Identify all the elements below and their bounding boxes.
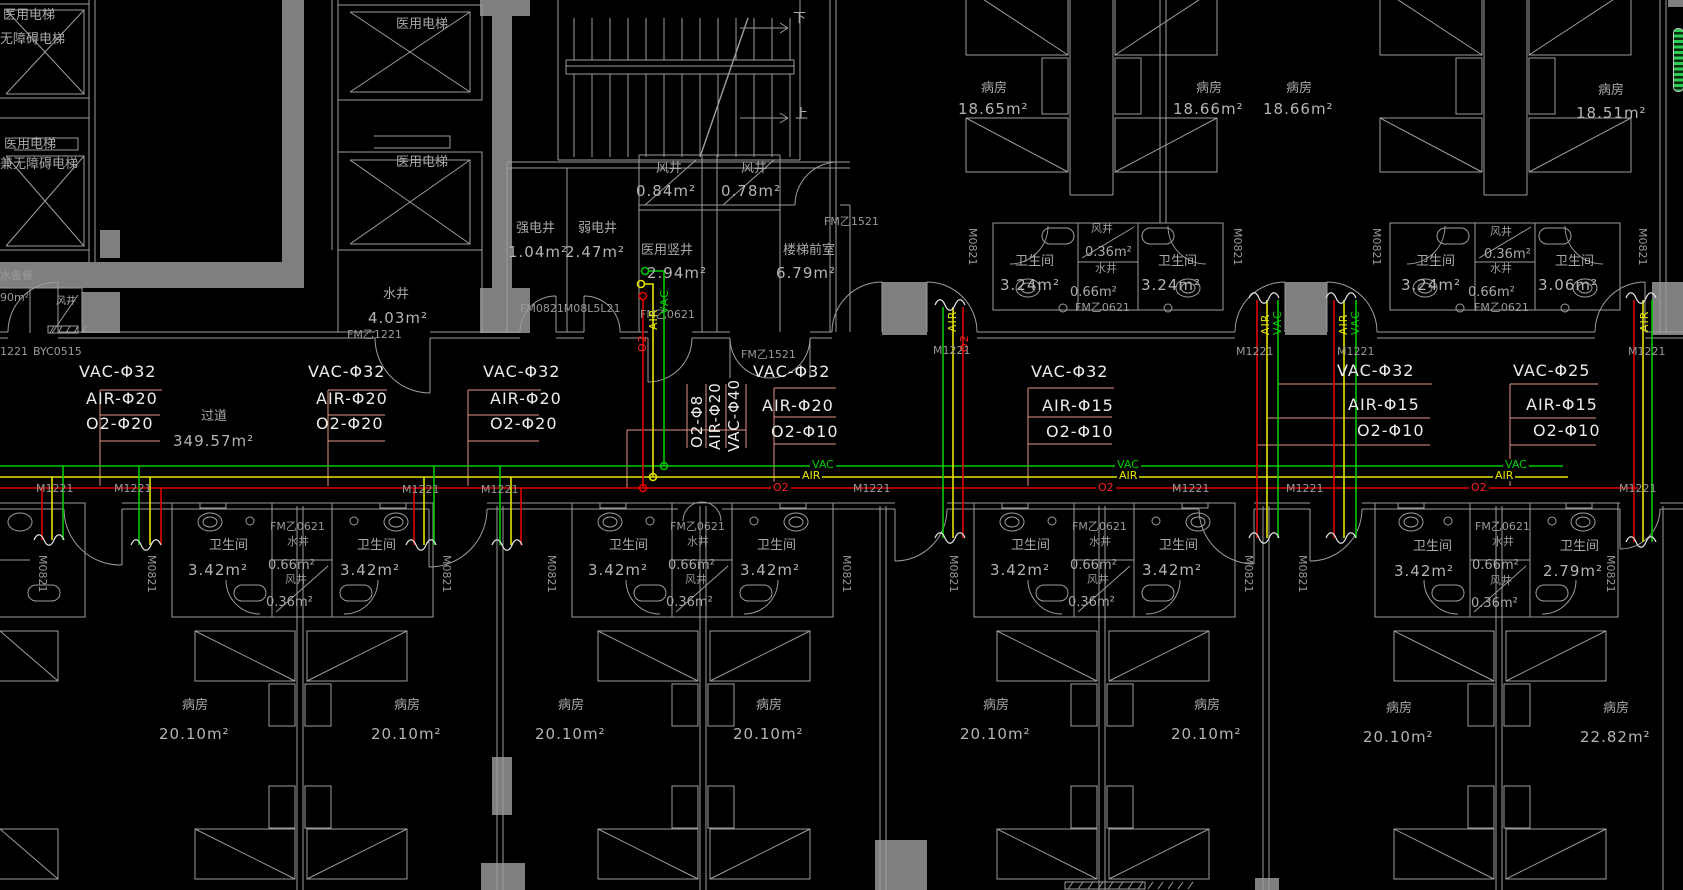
vent-shaft-2-label: 风井 — [741, 162, 767, 175]
ward-area: 18.66m² — [1263, 102, 1334, 117]
door-tag-m1221: M1221 — [853, 483, 891, 494]
door-arc — [895, 509, 947, 561]
vertical-scrollbar-indicator[interactable] — [1673, 28, 1683, 92]
pipe-size-vac: VAC-Φ32 — [1031, 364, 1108, 380]
water-shaft-label: 水井 — [287, 536, 309, 547]
bathroom-label: 卫生间 — [1560, 540, 1599, 553]
air-riser-label: AIR — [947, 311, 958, 332]
bed — [1394, 631, 1494, 681]
bed — [997, 829, 1097, 879]
weak-elec-shaft-area: 2.47m² — [565, 245, 625, 260]
door-tag-m1221: M1221 — [1172, 483, 1210, 494]
air-riser-label: AIR — [1338, 314, 1349, 335]
bed — [1380, 118, 1482, 172]
door-tag-m0821: M0821 — [37, 555, 48, 593]
weak-elec-shaft-label: 弱电井 — [578, 222, 617, 235]
vent-shaft-area: 0.36m² — [266, 596, 313, 609]
door-tag-m1221: M1221 — [1628, 346, 1666, 357]
bathroom-label: 卫生间 — [1413, 540, 1452, 553]
door-tag-m0821: M0821 — [441, 555, 452, 593]
door-tag-m1221: M1221 — [36, 483, 74, 494]
bathroom-label: 卫生间 — [1011, 539, 1050, 552]
bathroom-area: 3.42m² — [340, 563, 400, 578]
ward-label: 病房 — [756, 699, 782, 712]
water-shaft-label: 水井 — [1492, 536, 1514, 547]
bed — [1529, 118, 1631, 172]
ward-area: 20.10m² — [1363, 730, 1434, 745]
pipe-size-vac: VAC-Φ32 — [1337, 363, 1414, 379]
bathroom-area: 3.42m² — [990, 563, 1050, 578]
air-pipe-text: AIR — [1117, 470, 1139, 481]
bed — [1109, 829, 1209, 879]
bed — [1380, 0, 1482, 55]
pipe-size-vac: VAC-Φ32 — [753, 364, 830, 380]
pipe-size-vac: VAC-Φ32 — [79, 364, 156, 380]
bathroom-area: 3.42m² — [1394, 564, 1454, 579]
pipe-size-o2: O2-Φ20 — [490, 416, 558, 432]
bed — [1506, 829, 1606, 879]
pipe-size-air: AIR-Φ15 — [1526, 397, 1598, 413]
ward-label: 病房 — [1286, 82, 1312, 95]
vent-shaft-area: 0.36m² — [1484, 248, 1531, 261]
door-tag-fm1221: FM乙1221 — [347, 329, 402, 340]
door-tag-fm0621: FM乙0621 — [270, 521, 325, 532]
bed — [598, 829, 698, 879]
door-tag-fm1521: FM乙1521 — [824, 216, 879, 227]
strong-elec-shaft-label: 强电井 — [516, 222, 555, 235]
double-door-arch — [683, 502, 721, 521]
door-arc — [429, 509, 487, 567]
bathroom-label: 卫生间 — [757, 539, 796, 552]
vent-shaft-area: 0.36m² — [1068, 596, 1115, 609]
door-tag-m0821: M0821 — [1297, 555, 1308, 593]
ward-label: 病房 — [1194, 699, 1220, 712]
vent-shaft-area: 0.36m² — [1471, 597, 1518, 610]
vent-shaft-1-label: 风井 — [656, 162, 682, 175]
pipe-size-air: AIR-Φ20 — [490, 391, 562, 407]
door-tag-m0821: M0821 — [841, 555, 852, 593]
pantry-area: 90m² — [0, 292, 29, 303]
water-shaft-area: 0.66m² — [1468, 286, 1515, 299]
pipe-size-o2: O2-Φ20 — [86, 416, 154, 432]
door-tag-m0821: M0821 — [1243, 555, 1254, 593]
door-tag-fm0621: FM乙0621 — [1474, 302, 1529, 313]
bathroom-area: 3.24m² — [1401, 278, 1461, 293]
water-shaft-area: 0.66m² — [268, 559, 315, 572]
bathroom-area: 3.24m² — [1000, 278, 1060, 293]
door-arc — [64, 509, 122, 565]
water-shaft-label: 水井 — [383, 288, 409, 301]
water-shaft-area: 4.03m² — [368, 311, 428, 326]
bathroom-area: 3.24m² — [1141, 278, 1201, 293]
door-tag-m0821: M0821 — [146, 555, 157, 593]
bathroom-area: 2.79m² — [1543, 564, 1603, 579]
o2-riser-label: O2 — [637, 334, 648, 352]
o2-pipe-text: O2 — [1469, 482, 1489, 493]
door-tag-m0821: M0821 — [1637, 228, 1648, 266]
bed — [1529, 0, 1631, 55]
door-tag-m1221: M1221 — [933, 345, 971, 356]
bathroom-area: 3.42m² — [588, 563, 648, 578]
bed — [966, 118, 1068, 172]
pipe-size-air: AIR-Φ15 — [1348, 397, 1420, 413]
corridor-area: 349.57m² — [173, 434, 254, 449]
pipe-size-o2: O2-Φ20 — [316, 416, 384, 432]
elevator-1-label: 医用电梯 — [3, 9, 55, 22]
staircase — [558, 0, 800, 160]
door-tag-m1221: M1221 — [1337, 346, 1375, 357]
water-shaft-area: 0.66m² — [1472, 559, 1519, 572]
door-tag-m1221: M1221 — [402, 484, 440, 495]
bathroom-label: 卫生间 — [1015, 255, 1054, 268]
water-shaft-area: 0.66m² — [668, 559, 715, 572]
ward-label: 病房 — [1196, 82, 1222, 95]
vent-shaft-label: 风井 — [1087, 574, 1109, 585]
ward-area: 18.51m² — [1576, 106, 1647, 121]
ward-area: 20.10m² — [1171, 727, 1242, 742]
air-riser-label: AIR — [1639, 311, 1650, 332]
pantry-vent-label: 风井 — [56, 297, 76, 307]
water-shaft-area: 0.66m² — [1070, 286, 1117, 299]
bathroom-area: 3.06m² — [1538, 278, 1598, 293]
pipe-size-vac: VAC-Φ32 — [308, 364, 385, 380]
door-tag-fm0621: FM乙0621 — [1075, 302, 1130, 313]
door-tag-fm0621: FM乙0621 — [1475, 521, 1530, 532]
door-tag-fm0621: FM乙0621 — [670, 521, 725, 532]
corner-tab — [1668, 0, 1683, 7]
ward-label: 病房 — [1386, 702, 1412, 715]
door-tag-overlap: FM0821M08L5L21 — [520, 303, 621, 314]
door-tag-fm1521: FM乙1521 — [741, 349, 796, 360]
door-tag-fm0621: FM乙0621 — [1072, 521, 1127, 532]
bathroom-area: 3.42m² — [188, 563, 248, 578]
bathroom-label: 卫生间 — [1555, 255, 1594, 268]
ward-label: 病房 — [1598, 84, 1624, 97]
vac-riser-label: VAC — [1272, 310, 1283, 335]
pipe-size-vac-rotated: VAC-Φ40 — [727, 379, 742, 452]
elevator-4-label: 医用电梯 — [396, 156, 448, 169]
vent-shaft-label: 风井 — [685, 574, 707, 585]
door-tag-m0821: M0821 — [1371, 228, 1382, 266]
bed — [307, 631, 407, 681]
door-arc — [8, 282, 58, 332]
bed — [1506, 631, 1606, 681]
air-riser-label: AIR — [648, 309, 659, 330]
ward-label: 病房 — [558, 699, 584, 712]
corridor-label: 过道 — [201, 410, 227, 423]
bed — [966, 0, 1068, 55]
pipe-size-vac: VAC-Φ32 — [483, 364, 560, 380]
door-tag-m0821: M0821 — [546, 555, 557, 593]
door-tag-m0821: M0821 — [1605, 555, 1616, 593]
water-shaft-label: 水井 — [1089, 536, 1111, 547]
ward-label: 病房 — [394, 699, 420, 712]
pipe-size-air-rotated: AIR-Φ20 — [708, 382, 723, 450]
vent-shaft-area: 0.36m² — [1085, 246, 1132, 259]
vent-shaft-label: 风井 — [1490, 575, 1512, 586]
bathroom-label: 卫生间 — [357, 539, 396, 552]
water-shaft-area: 0.66m² — [1070, 559, 1117, 572]
pipe-size-air: AIR-Φ20 — [762, 398, 834, 414]
door-arc — [1620, 509, 1660, 549]
bed — [195, 631, 295, 681]
o2-pipe-text: O2 — [771, 482, 791, 493]
ward-area: 20.10m² — [733, 727, 804, 742]
bed — [1109, 631, 1209, 681]
stair-down-label: 下 — [793, 12, 806, 25]
pipe-size-air: AIR-Φ15 — [1042, 398, 1114, 414]
medical-shaft-label: 医用竖井 — [641, 244, 693, 257]
vac-riser-label: VAC — [659, 289, 670, 314]
ward-area: 18.65m² — [958, 102, 1029, 117]
door-tag-m0821: M0821 — [967, 228, 978, 266]
bathroom-label: 卫生间 — [1159, 539, 1198, 552]
ward-area: 18.66m² — [1173, 102, 1244, 117]
ward-label: 病房 — [182, 699, 208, 712]
pipe-size-air: AIR-Φ20 — [316, 391, 388, 407]
door-tag-m0821: M0821 — [948, 555, 959, 593]
stair-up-label: 上 — [795, 108, 808, 121]
medical-shaft-area: 2.94m² — [647, 266, 707, 281]
door-tag-m1221: M1221 — [481, 484, 519, 495]
bed — [710, 631, 810, 681]
door-tag-m1221: M1221 — [1286, 483, 1324, 494]
door-tag-m1221: M1221 — [114, 483, 152, 494]
water-shaft-label: 水井 — [687, 536, 709, 547]
vac-riser-label: VAC — [1350, 310, 1361, 335]
pipe-size-vac: VAC-Φ25 — [1513, 363, 1590, 379]
bathroom-label: 卫生间 — [1158, 255, 1197, 268]
vent-shaft-area: 0.36m² — [666, 596, 713, 609]
vent-shaft-label: 风井 — [1490, 226, 1512, 237]
bathroom-label: 卫生间 — [209, 539, 248, 552]
ward-area: 20.10m² — [159, 727, 230, 742]
water-shaft-label: 水井 — [1095, 263, 1117, 274]
bathroom-area: 3.42m² — [740, 563, 800, 578]
vent-shaft-label: 风井 — [1091, 223, 1113, 234]
vent-shaft-label: 风井 — [285, 574, 307, 585]
elevator-2-label: 医用电梯 — [4, 138, 56, 151]
bed — [195, 829, 295, 879]
pantry-label: 水备餐 — [0, 270, 33, 281]
stair-lobby-label: 楼梯前室 — [783, 244, 835, 257]
elevator-3-label: 医用电梯 — [396, 18, 448, 31]
pipe-size-o2: O2-Φ10 — [1357, 423, 1425, 439]
elevator-1-sublabel: 无障碍电梯 — [0, 33, 65, 46]
air-riser-label: AIR — [1260, 314, 1271, 335]
door-tag-m1221: M1221 — [1236, 346, 1274, 357]
bed — [710, 829, 810, 879]
ward-label: 病房 — [983, 699, 1009, 712]
strong-elec-shaft-area: 1.04m² — [508, 245, 568, 260]
ward-area: 20.10m² — [535, 727, 606, 742]
bed — [1394, 829, 1494, 879]
o2-pipe-text: O2 — [1096, 482, 1116, 493]
pipe-size-o2: O2-Φ10 — [771, 424, 839, 440]
door-tag-m1221: M1221 — [1619, 483, 1657, 494]
bed — [997, 631, 1097, 681]
pipe-size-o2: O2-Φ10 — [1046, 424, 1114, 440]
ward-area: 20.10m² — [371, 727, 442, 742]
door-tag-m0821: M0821 — [1232, 228, 1243, 266]
stair-lobby-area: 6.79m² — [776, 266, 836, 281]
elevator-2-sublabel: 兼无障碍电梯 — [0, 158, 78, 171]
cad-drawing-canvas[interactable]: 医用电梯 无障碍电梯 医用电梯 兼无障碍电梯 医用电梯 医用电梯 水井 4.03… — [0, 0, 1683, 890]
pipe-size-o2: O2-Φ10 — [1533, 423, 1601, 439]
door-arc — [648, 338, 692, 382]
pipe-size-o2-rotated: O2-Φ8 — [690, 395, 705, 448]
door-tag-byc0515: BYC0515 — [33, 346, 82, 357]
ward-label: 病房 — [1603, 702, 1629, 715]
air-pipe-text: AIR — [800, 470, 822, 481]
ward-label: 病房 — [981, 82, 1007, 95]
bed — [307, 829, 407, 879]
vent-shaft-2-area: 0.78m² — [721, 184, 781, 199]
vent-shaft-1-area: 0.84m² — [636, 184, 696, 199]
pipe-size-air: AIR-Φ20 — [86, 391, 158, 407]
bathroom-label: 卫生间 — [609, 539, 648, 552]
ward-area: 22.82m² — [1580, 730, 1651, 745]
bed — [598, 631, 698, 681]
air-pipe-text: AIR — [1493, 470, 1515, 481]
ward-area: 20.10m² — [960, 727, 1031, 742]
door-tag-m1221-cut: 1221 — [0, 346, 28, 357]
bathroom-label: 卫生间 — [1416, 255, 1455, 268]
bathroom-area: 3.42m² — [1142, 563, 1202, 578]
water-shaft-label: 水井 — [1490, 263, 1512, 274]
